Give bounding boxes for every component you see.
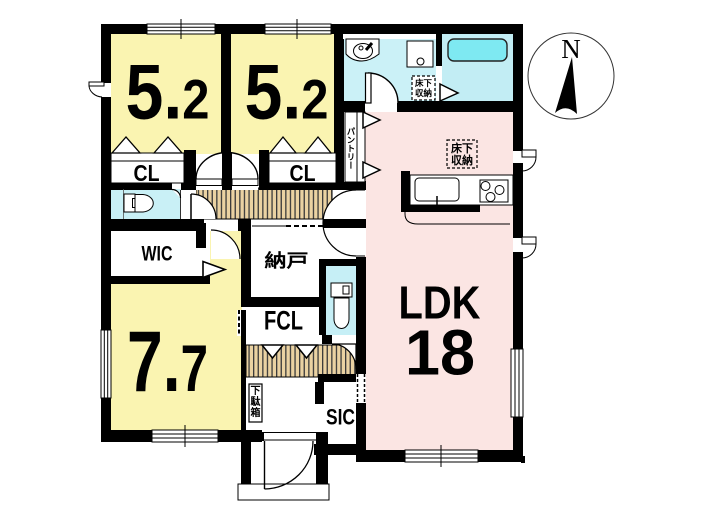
- svg-text:CL: CL: [134, 160, 160, 186]
- svg-text:駄: 駄: [251, 395, 262, 408]
- svg-text:床下: 床下: [451, 141, 473, 155]
- svg-text:下: 下: [251, 385, 261, 397]
- svg-text:SIC: SIC: [326, 405, 355, 430]
- svg-text:収納: 収納: [451, 153, 473, 167]
- svg-text:収納: 収納: [415, 88, 432, 98]
- svg-text:床下: 床下: [415, 78, 433, 88]
- svg-text:WIC: WIC: [142, 243, 173, 266]
- svg-text:18: 18: [405, 317, 475, 389]
- svg-text:FCL: FCL: [264, 306, 303, 336]
- svg-text:N: N: [561, 34, 581, 64]
- svg-text:納戸: 納戸: [265, 250, 309, 271]
- svg-text:CL: CL: [290, 160, 316, 186]
- svg-text:箱: 箱: [251, 406, 261, 419]
